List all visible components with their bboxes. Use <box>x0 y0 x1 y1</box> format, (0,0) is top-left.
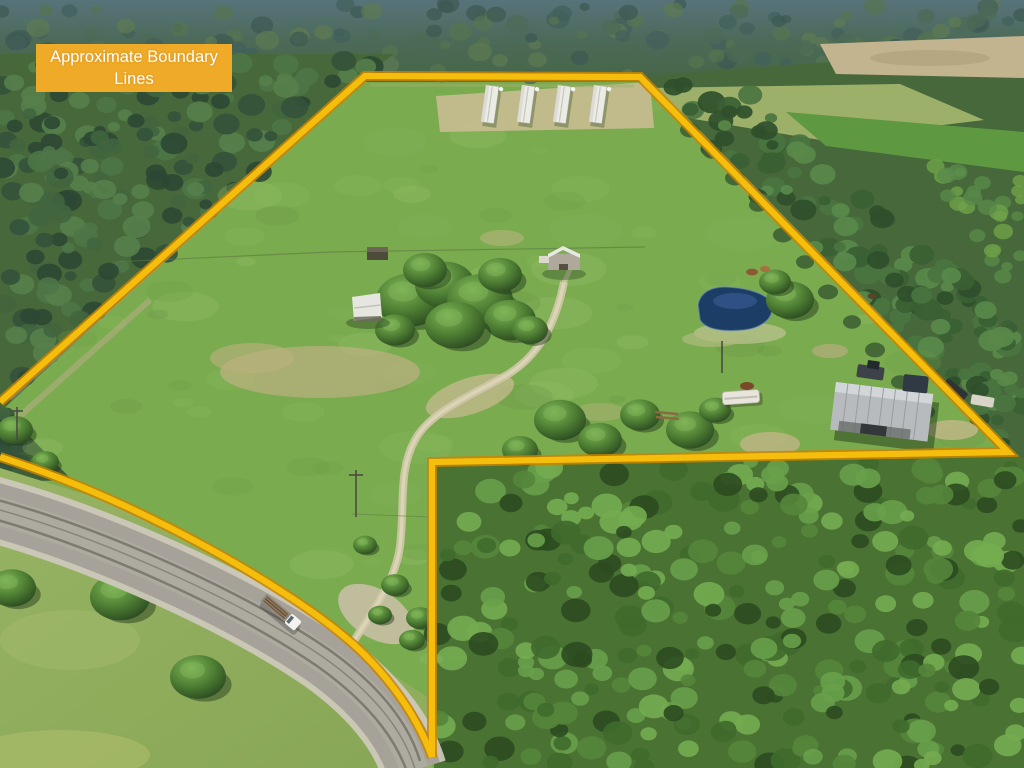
boundary-label: Approximate Boundary Lines <box>36 44 232 92</box>
aerial-photo-screenshot: Approximate Boundary Lines <box>0 0 1024 768</box>
boundary-label-text: Approximate Boundary Lines <box>40 46 228 90</box>
aerial-photo <box>0 0 1024 768</box>
small-shed <box>367 247 388 260</box>
rv-trailer <box>722 389 763 408</box>
